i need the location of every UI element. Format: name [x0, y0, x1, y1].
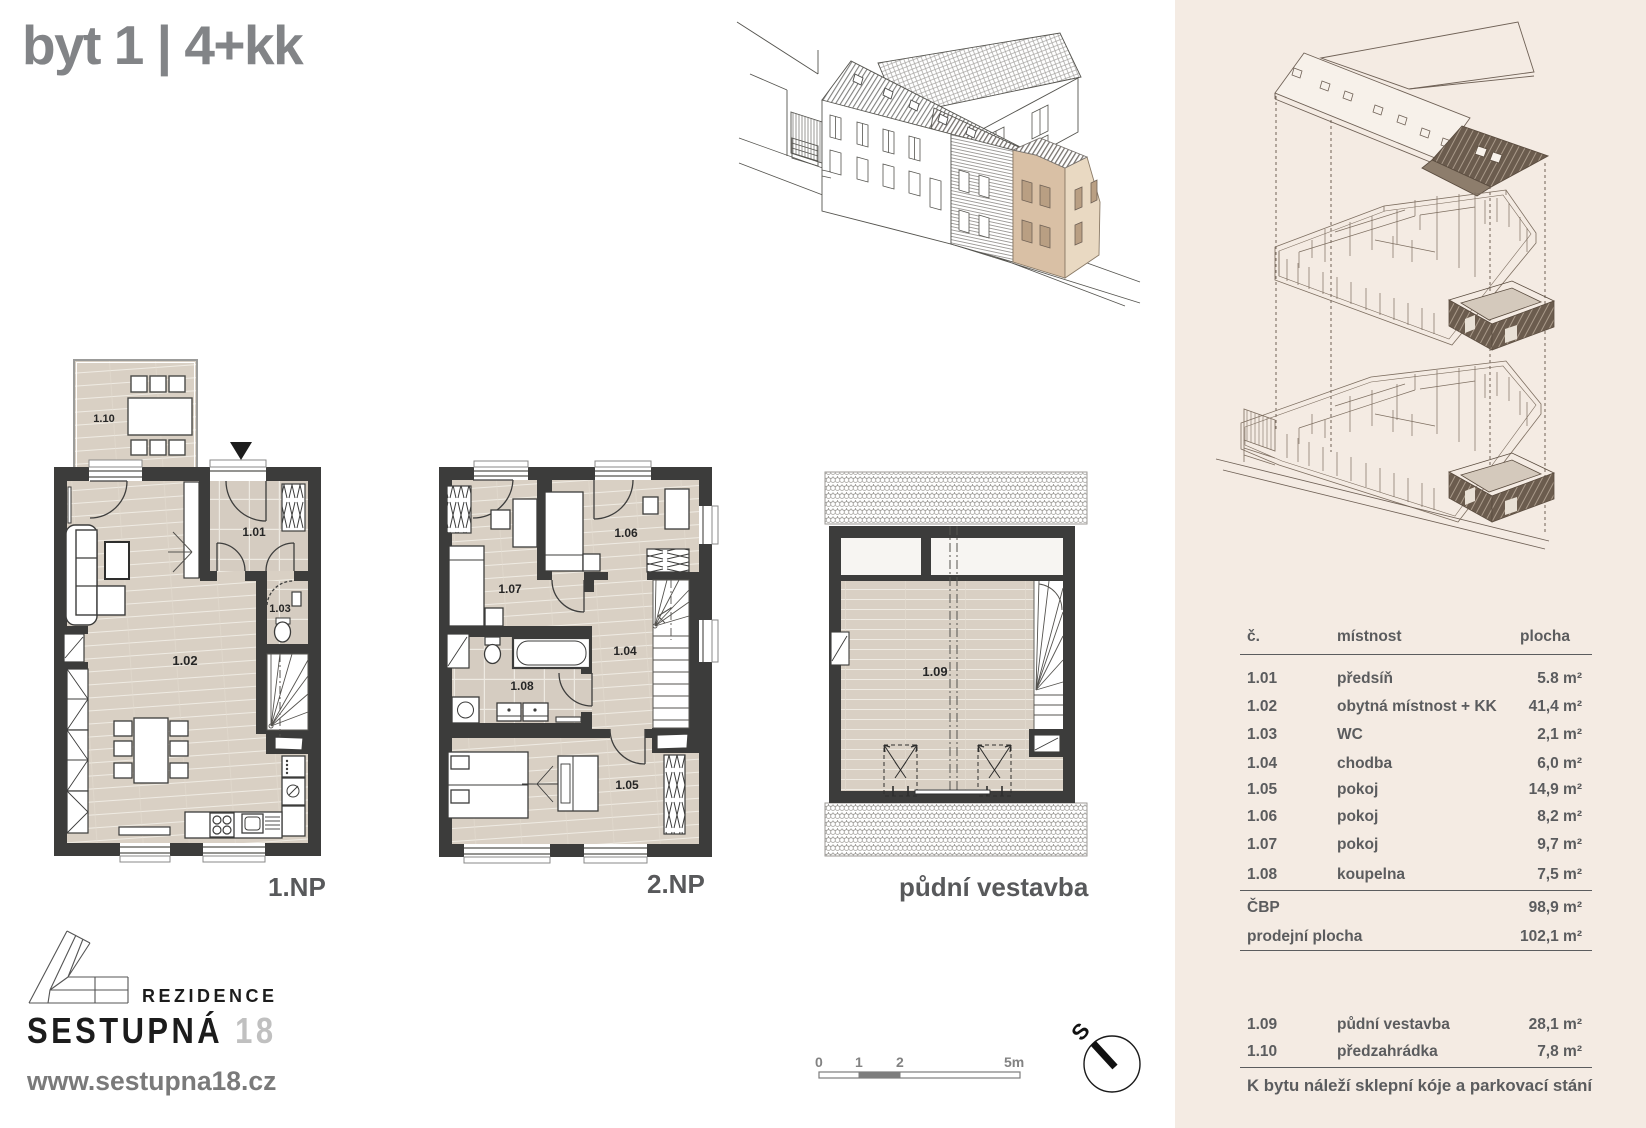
svg-text:1.08: 1.08	[510, 679, 534, 693]
svg-text:REZIDENCE: REZIDENCE	[142, 986, 278, 1006]
svg-text:1.01: 1.01	[242, 525, 266, 539]
svg-text:S: S	[1070, 1020, 1095, 1045]
svg-text:5m: 5m	[1004, 1054, 1024, 1070]
svg-text:1.02: 1.02	[172, 653, 197, 668]
svg-text:1.09: 1.09	[922, 664, 947, 679]
svg-text:1.05: 1.05	[615, 778, 639, 792]
svg-text:1: 1	[855, 1054, 863, 1070]
svg-text:1.10: 1.10	[93, 413, 114, 425]
svg-text:1.03: 1.03	[269, 603, 290, 615]
svg-text:1.07: 1.07	[498, 582, 522, 596]
svg-text:1.04: 1.04	[613, 644, 637, 658]
svg-text:0: 0	[815, 1054, 823, 1070]
svg-text:1.06: 1.06	[614, 526, 638, 540]
svg-text:2: 2	[896, 1054, 904, 1070]
